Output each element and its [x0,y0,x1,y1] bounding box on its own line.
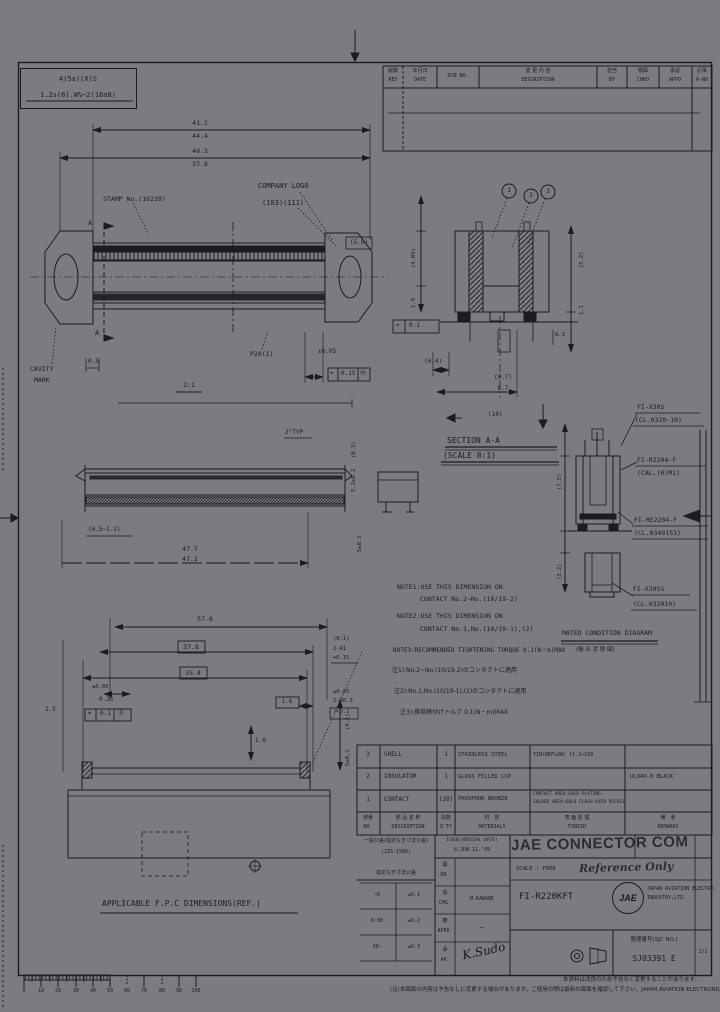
tb-tol-caption: 指定なき寸法公差 [376,871,416,876]
mated-caption: MATED CONDITION DIAGRAM [562,630,652,637]
ruler-20: 20 [55,989,61,994]
fpc-r2b: 2-R0.3 [333,699,353,705]
fpc-r1a: (0.1) [333,637,350,643]
bom-r3-fin: TIN(REFLOW) t1.2×150 [533,753,593,758]
bom-r2-mat: GLASS FILLED LCP [458,775,511,781]
fpc-dim-37-8: 37.8 [183,644,199,651]
ruler-0: 0 [22,989,25,994]
stamp-box-line2: 1.2s(6).W%~2(16a8) [40,92,116,99]
tb-sig2-jp: 設 [442,891,447,896]
ruler-30: 30 [73,989,79,994]
bom-r3-mat: STAINLESS STEEL [458,753,508,759]
section-mark-a-bottom: A [95,330,99,337]
bom-h-desc-jp: 部 品 名 称 [396,816,421,821]
cs-left-dim: (4.05) [412,248,418,268]
ruler-50: 50 [107,989,113,994]
drawing-sheet: 4(5a)(X)S 1.2s(6).W%~2(16a8) 版数 REV 年月日 … [0,0,720,1012]
cs-right-dim2: 1.1 [580,305,586,315]
bom-h-fin: FINISH [568,825,586,830]
bom-h-mat: MATERIALS [478,825,505,830]
tb-tol-r2-range: 6~30 [371,919,383,924]
rev-col-rev: REV [388,78,397,83]
tb-tol-r2-val: ±0.2 [408,919,420,924]
company-logo-callout: COMPANY LOGO [258,183,309,190]
cavity-callout-2: MARK [34,377,50,384]
ruler-80: 80 [159,989,165,994]
ruler-100: 100 [191,989,200,994]
rev-col-by: BY [609,78,615,83]
cs-right-dim1: (5.2) [580,251,586,268]
tb-dwg-label: 整理番号(SJC NO.) [631,938,678,944]
dim-40-3: 40.3 [192,148,208,155]
fpc-caption: APPLICABLE F.P.C DIMENSIONS(REF.) [102,900,261,908]
fcf-value: 0.15 [341,371,355,377]
bom-h-no: NO. [363,825,372,830]
rev-col-by-jp: 担当 [607,69,617,74]
section-scale: (SCALE 8:1) [443,452,496,460]
bom-r1-desc: CONTACT [384,797,409,803]
cs-dim-6-7: 6.7 [498,386,509,392]
ruler-90: 90 [176,989,182,994]
bom-r1-fin1: CONTACT AREA:GOLD PLATING [533,793,601,798]
drawing-linework [0,0,720,1012]
fpc-dim-57-8: 57.8 [197,616,213,623]
fpc-dim-1-0: 1.0 [255,738,266,744]
note-1b: CONTACT No.2~No.(10/19-2) [420,596,518,603]
tb-tol-r3-val: ±0.3 [408,945,420,950]
view-scale: 2:1 [183,382,195,389]
bom-r1-no: 1 [366,797,370,803]
tb-sig4-jp: 承 [442,948,447,953]
jae-logo-text: JAE [619,893,637,903]
ruler-70: 70 [141,989,147,994]
dim-37-8: 37.8 [192,161,208,168]
sv-right-dim1: (0.3) [352,441,358,458]
tb-issue-value: 8.JUN.11.'99 [454,848,490,853]
mated-callout-4-name: FI-X30SS [633,586,664,593]
footer-line1: 本資料は改良のため予告なく変更することがあります。 [563,978,700,984]
mated-callout-1-name: FI-X30S [637,404,664,411]
bom-h-desc: DESCRIPTION [391,825,424,830]
fpc-fcf-position-icon: ⌖ [88,711,91,717]
tb-sig3-en: APPD. [437,929,452,934]
tol-label: ±0.05 [318,349,336,355]
bom-h-rem-jp: 備 考 [660,816,675,821]
ruler-10: 10 [38,989,44,994]
fpc-tol-005: ±0.05 [92,685,109,691]
bom-r1-qty: (20) [439,797,453,803]
rev-col-ano: A-NO [696,78,708,83]
balloon-2: 2 [529,193,533,199]
fpc-rv1: (4.1) [346,713,352,730]
fcf-position-icon: ⌖ [330,371,333,377]
tb-sig1-jp: 図 [442,863,447,868]
rev-col-date: DATE [414,78,426,83]
note-2a: NOTE2:USE THIS DIMENSION ON [397,613,503,620]
note-j3: 注3):推奨締付けトルク 0.1(N・m)MAX [400,710,508,716]
rev-col-chkd-jp: 検図 [638,69,648,74]
tb-part-no: FI-R220KFT [519,893,573,902]
balloon-3: 3 [546,189,550,195]
section-ref: (10) [488,412,502,418]
sv-right-dim2: 5.2±0.2 [352,469,358,492]
note-2b: CONTACT No.1,No.(10/19-1),(2) [420,626,534,633]
bom-h-rem: REMARKS [657,825,678,830]
dim-44-4: 44.4 [192,133,208,140]
bom-h-qty-jp: 員数 [441,816,451,821]
section-title: SECTION A-A [447,437,500,445]
rev-col-desc-jp: 変 更 内 容 [526,69,551,74]
bom-r3-qty: 1 [444,752,448,758]
tb-sig2-en: CHG. [439,901,451,906]
bom-r2-desc: INSULATOR [384,774,417,780]
tb-tol-note2: (JIS-1986) [381,850,411,855]
mated-callout-3-ref: (CL.0349153) [634,530,681,537]
tb-dwg-no: SJ03391 E [632,955,675,963]
bom-h-no-jp: 部番 [363,816,373,821]
fpc-rv2: 5±0.1 [346,749,352,766]
footer-line2: (注)本図面の内容は予告なしに変更する場合があります。ご使用の際は最新の図面を確… [390,988,720,994]
tb-sig3-val: — [480,924,484,931]
rev-col-appd-jp: 承認 [670,69,680,74]
mated-left-dim1: (7.5) [558,473,564,490]
mated-left-dim2: (3.2) [558,563,564,580]
sv-total-lower: 47.2 [182,556,198,563]
tb-tol-note1: 一般公差(指定なき寸法公差) [364,839,428,844]
tb-issue-label: ISSUE(REVISAL DATE) [446,839,497,844]
mated-callout-2-name: FI-R2204-F [637,457,676,464]
cs-left-dim2: 1.9 [412,298,418,308]
rev-col-ano-jp: 記事 [697,69,707,74]
tb-company-2: INDUSTRY,LTD. [647,896,686,901]
tb-sig4-en: AP. [440,958,449,963]
bom-r2-qty: 1 [444,774,448,780]
note-1a: NOTE1:USE THIS DIMENSION ON [397,584,503,591]
fpc-r1c: ⌖0.15 [333,656,349,662]
tb-company-1: JAPAN AVIATION ELECTRO. [647,887,716,892]
sv-right-dim3: 5±0.1 [358,535,364,552]
section-mark-a-top: A [88,220,92,227]
balloon-1: 1 [507,188,511,194]
dim-end-ref: (5.9) [350,240,368,246]
rev-col-rev-jp: 版数 [388,69,398,74]
bom-h-qty: Q'TY [440,825,452,830]
bom-r1-fin2: SOLDER AREA:GOLD FLASH OVER NICKEL [533,801,625,806]
fpc-dim-35-4: 35.4 [185,670,201,677]
bom-r2-rem: UL94V-0 BLACK [630,775,673,781]
note-j1: 注1):No.2~No.(10/19-2)のコンタクトに適用 [392,668,517,674]
cs-dim-0-7: (0.7) [494,375,512,381]
bom-r3-desc: SHELL [384,752,402,758]
tb-scale: SCALE : FREE [516,867,556,873]
jae-logo: JAE [612,882,644,914]
bom-r3-no: 3 [366,752,370,758]
mated-caption-jp: (嵌 合 状 態 図) [576,648,615,654]
rev-col-date-jp: 年月日 [412,69,427,74]
fpc-r2a: ±0.05 [333,690,350,696]
fpc-fcf-modifier: Ⓢ [118,711,124,717]
sv-left-dim: (0.5~1.2) [88,527,121,533]
fpc-fcf-value: 0.1 [100,711,111,717]
tb-sheet-no: 1/1 [698,950,707,955]
fpc-dim-1-6: 1.6 [282,699,293,705]
tb-tol-r1-range: ~6 [374,893,380,898]
cs-fcf-position-icon: ⌖ [396,323,399,329]
cs-fcf-value: 0.1 [409,323,420,329]
fcf-modifier: Ⓜ [360,371,366,377]
rev-col-desc: DESCRIPTION [521,78,554,83]
rev-col-appd: APPD [669,78,681,83]
company-logo-ref: (103)(111) [262,200,304,207]
fpc-dim-1-5: 1.5 [45,707,56,713]
tb-sig2-val: M.KAWABE [470,897,494,902]
sv-total-upper: 47.7 [182,546,198,553]
ruler-40: 40 [90,989,96,994]
cavity-callout-1: CAVITY [30,366,53,373]
cs-right-dim3: 0.3 [555,333,565,339]
tb-sig3-jp: 審 [442,919,447,924]
tb-tol-r1-val: ±0.1 [408,893,420,898]
bom-r1-mat: PHOSPHOR BRONZE [458,797,508,803]
bom-r2-no: 2 [366,774,370,780]
mated-callout-1-ref: (CL.0320-10) [635,417,682,424]
note-3: NOTE3:RECOMMENDED TIGHTENING TORQUE 0.1(… [393,648,565,654]
ruler-60: 60 [124,989,130,994]
mated-callout-4-ref: (CL.032010) [633,601,676,608]
mated-callout-3-name: FI-RE2204-F [634,517,677,524]
sv-typ-label: 2°TYP [285,430,303,436]
fpc-r1b: 2-R1 [333,647,346,653]
bom-h-mat-jp: 材 質 [484,816,499,821]
stamp-box-line1: 4(5a)(X)S [59,76,97,83]
pitch-label: P20(1) [250,351,273,358]
mated-callout-2-ref: (CAL.(0)M1) [637,470,680,477]
dim-0-5: 0.5 [88,359,99,365]
fpc-dim-0-25: 0.25 [99,697,113,703]
note-j2: 注2):No.1,No.(10/19-1),(2)のコンタクトに適用 [394,689,526,695]
rev-col-dcn: DCN NO. [447,74,468,79]
dim-41-2: 41.2 [192,120,208,127]
bom-h-fin-jp: 表 面 処 理 [565,816,590,821]
cs-dim-0-4: (0.4) [424,359,442,365]
reference-only-stamp: Reference Only [579,860,674,875]
tb-sig1-en: DR. [440,873,449,878]
tb-tol-r3-range: 30~ [372,945,381,950]
rev-col-chkd: CHKD [637,78,649,83]
stamp-callout: STAMP No.(10220) [103,196,166,203]
